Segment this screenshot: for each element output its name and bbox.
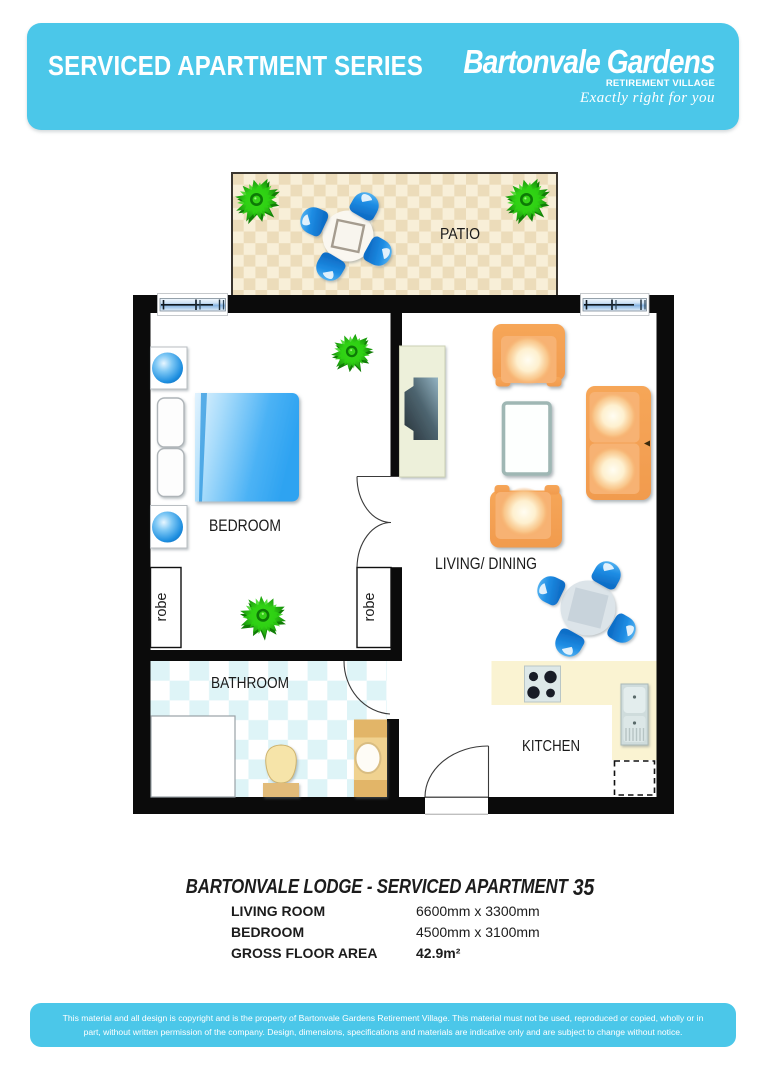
svg-text:PATIO: PATIO [440,226,480,243]
svg-text:KITCHEN: KITCHEN [522,738,580,755]
svg-text:BEDROOM: BEDROOM [209,517,281,535]
svg-text:robe: robe [361,593,378,622]
svg-text:LIVING/ DINING: LIVING/ DINING [435,555,537,573]
svg-text:BATHROOM: BATHROOM [211,675,289,692]
svg-text:robe: robe [153,593,170,622]
